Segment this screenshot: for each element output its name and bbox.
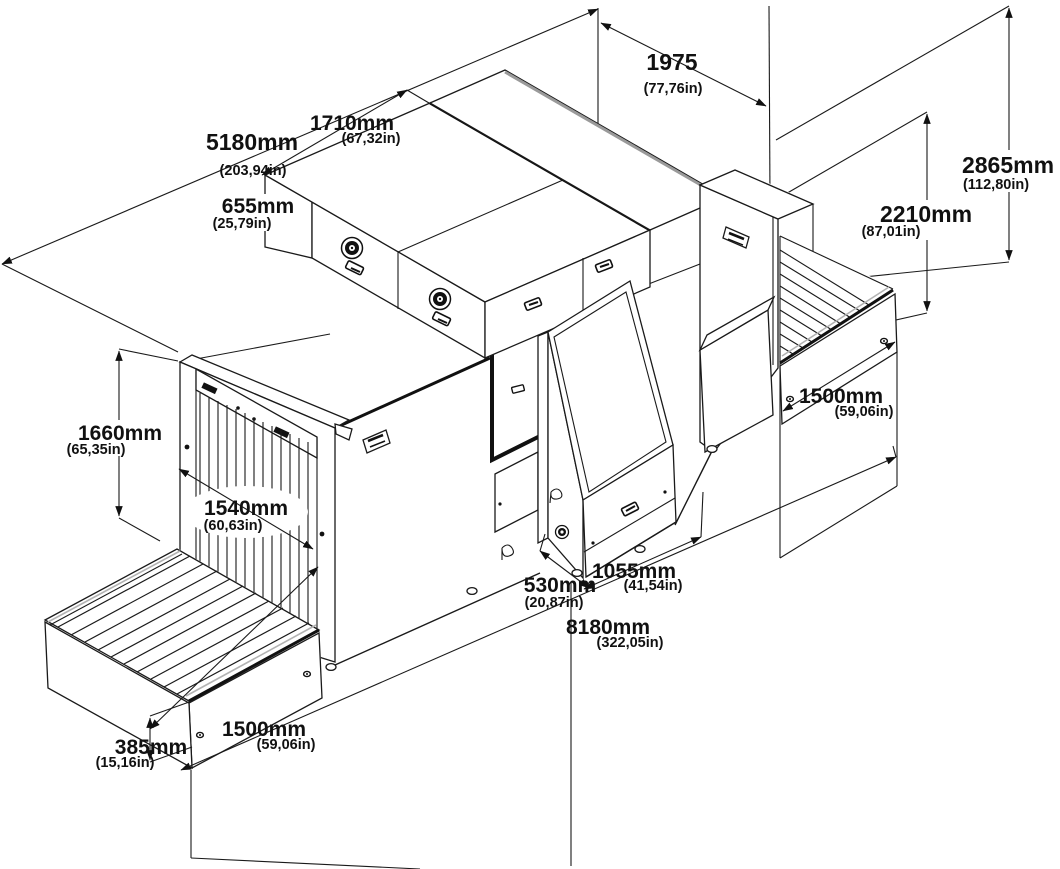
dim-label-top-clearance: 1975 (77,76in) (644, 49, 703, 97)
dim-label-cabinet-length: 1710mm (67,32in) (310, 112, 401, 147)
portal-bolt-icon (320, 532, 325, 537)
dim-label-portal-height: 1660mm (65,35in) (67, 420, 164, 458)
svg-text:(59,06in): (59,06in) (257, 737, 316, 753)
dim-label-overall-height: 2865mm (112,80in) (962, 150, 1054, 193)
tick-portal-height-bottom (119, 518, 160, 541)
dim-label-body-height: 2210mm (87,01in) (862, 200, 972, 240)
svg-text:(20,87in): (20,87in) (525, 595, 584, 611)
door-latch-icon (498, 502, 501, 505)
dim-label-entry-conveyor-length: 1500mm (59,06in) (222, 718, 316, 753)
svg-text:(25,79in): (25,79in) (213, 216, 272, 232)
ext-body-height-top (777, 112, 927, 199)
svg-text:(87,01in): (87,01in) (862, 224, 921, 240)
console-bolt-icon (591, 541, 594, 544)
svg-text:530mm: 530mm (524, 574, 596, 597)
leveling-foot (635, 546, 645, 553)
dim-label-console-depth: 530mm (20,87in) (524, 574, 596, 611)
svg-text:(203,94in): (203,94in) (220, 163, 287, 179)
portal-bolt-icon (185, 445, 190, 450)
skirt-bolt-icon (197, 732, 204, 737)
ext-plane-bottom-edge (191, 858, 420, 869)
skirt-bolt-icon (881, 338, 888, 343)
ext-overall-width (2, 264, 178, 352)
svg-text:(77,76in): (77,76in) (644, 81, 703, 97)
dim-label-entry-conveyor-height: 385mm (15,16in) (96, 736, 188, 771)
tick-portal-height-top (119, 349, 178, 361)
svg-text:(60,63in): (60,63in) (204, 518, 263, 534)
ext-console-width (701, 492, 703, 537)
leveling-foot (326, 664, 336, 671)
dim-label-overall-length: 8180mm (322,05in) (566, 616, 664, 651)
cooling-fan-icon (342, 238, 363, 259)
ext-overall-height-top (776, 6, 1009, 140)
svg-text:655mm: 655mm (222, 195, 294, 218)
leveling-foot (467, 588, 477, 595)
svg-text:2865mm: 2865mm (962, 152, 1054, 178)
svg-text:(59,06in): (59,06in) (835, 404, 894, 420)
xray-scanner-dimension-drawing: 5180mm (203,94in) 1710mm (67,32in) 1975 … (0, 0, 1060, 869)
svg-text:(67,32in): (67,32in) (342, 131, 401, 147)
skirt-bolt-icon (304, 671, 311, 676)
ext-top-clearance-right (769, 6, 770, 200)
console-fan-icon (556, 526, 569, 539)
skirt-bolt-icon (787, 396, 794, 401)
svg-text:(65,35in): (65,35in) (67, 442, 126, 458)
svg-text:5180mm: 5180mm (206, 129, 298, 155)
svg-text:(41,54in): (41,54in) (624, 578, 683, 594)
svg-text:(15,16in): (15,16in) (96, 755, 155, 771)
svg-text:(112,80in): (112,80in) (963, 177, 1029, 193)
ext-cabinet-length (407, 90, 429, 103)
dim-label-console-width: 1055mm (41,54in) (592, 560, 683, 594)
ext-overall-length-right (893, 446, 896, 457)
dim-label-cabinet-height: 655mm (25,79in) (213, 194, 295, 232)
ext-exit-plane-bottom (780, 486, 897, 558)
console-bolt-icon (663, 490, 666, 493)
header-bolt-icon (236, 406, 240, 410)
svg-text:1975: 1975 (646, 49, 697, 75)
drawing-page: 5180mm (203,94in) 1710mm (67,32in) 1975 … (0, 0, 1060, 869)
svg-text:(322,05in): (322,05in) (597, 635, 664, 651)
svg-text:1540mm: 1540mm (204, 497, 288, 520)
dim-label-exit-conveyor-length: 1500mm (59,06in) (799, 385, 894, 420)
cooling-fan-icon (430, 289, 451, 310)
dim-label-overall-width: 5180mm (203,94in) (206, 129, 298, 179)
leveling-foot (707, 446, 717, 453)
console-side-strip (538, 332, 548, 543)
